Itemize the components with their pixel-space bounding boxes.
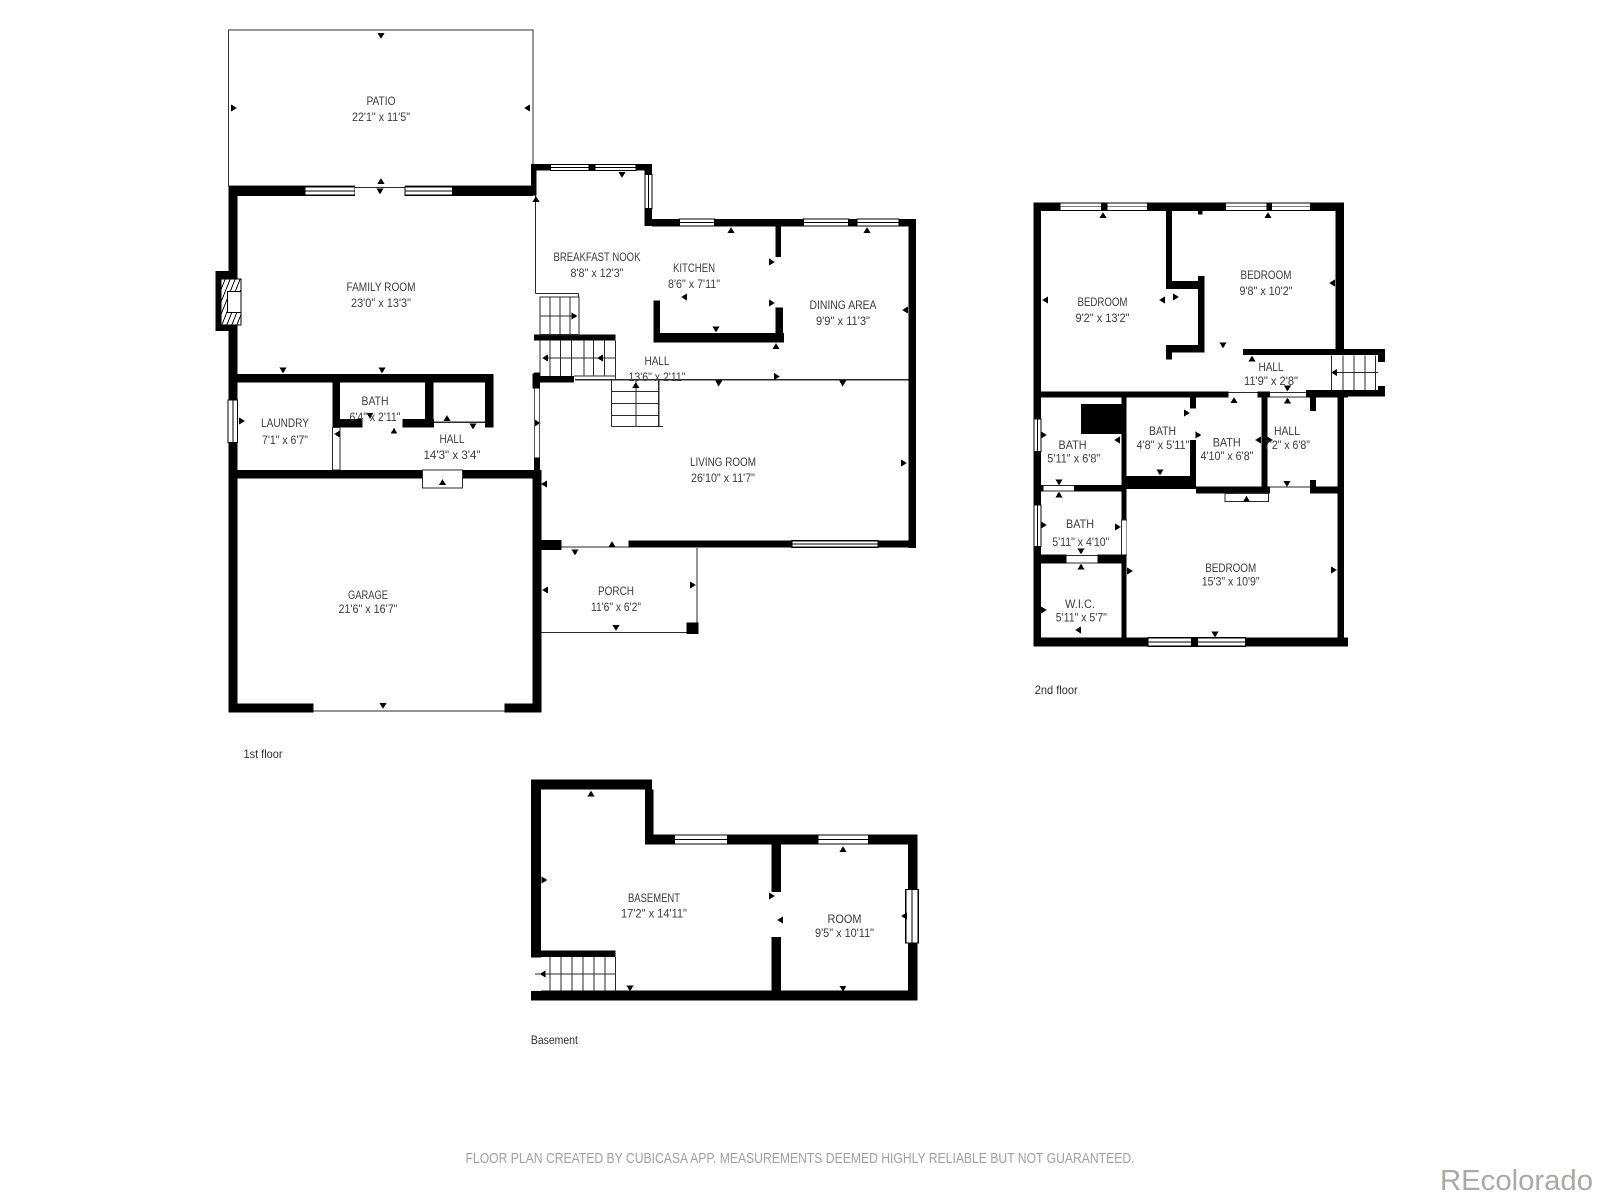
svg-text:LIVING ROOM: LIVING ROOM bbox=[690, 455, 756, 469]
svg-text:13'6" x 2'11": 13'6" x 2'11" bbox=[629, 370, 686, 384]
svg-text:BEDROOM: BEDROOM bbox=[1078, 295, 1128, 309]
svg-text:17'2" x 14'11": 17'2" x 14'11" bbox=[621, 907, 687, 921]
svg-text:BATH: BATH bbox=[1059, 438, 1087, 452]
svg-text:9'5" x 10'11": 9'5" x 10'11" bbox=[815, 926, 874, 940]
svg-text:22'1" x 11'5": 22'1" x 11'5" bbox=[352, 110, 410, 124]
svg-text:5'11" x 5'7": 5'11" x 5'7" bbox=[1056, 611, 1107, 625]
svg-text:BATH: BATH bbox=[362, 394, 389, 408]
svg-text:21'6" x 16'7": 21'6" x 16'7" bbox=[339, 602, 398, 616]
svg-text:5'11" x 4'10": 5'11" x 4'10" bbox=[1052, 535, 1109, 549]
svg-text:PORCH: PORCH bbox=[598, 584, 634, 598]
svg-text:BEDROOM: BEDROOM bbox=[1241, 268, 1292, 282]
svg-text:9'8" x 10'2": 9'8" x 10'2" bbox=[1240, 284, 1293, 298]
svg-text:BATH: BATH bbox=[1213, 436, 1241, 450]
svg-text:9'2" x 13'2": 9'2" x 13'2" bbox=[1076, 311, 1130, 325]
svg-text:PATIO: PATIO bbox=[367, 94, 396, 108]
svg-text:8'8" x 12'3": 8'8" x 12'3" bbox=[571, 266, 624, 280]
svg-text:HALL: HALL bbox=[1259, 360, 1284, 374]
svg-text:REcolorado: REcolorado bbox=[1440, 1165, 1593, 1197]
svg-text:11'9" x 2'8": 11'9" x 2'8" bbox=[1244, 374, 1298, 388]
svg-text:4'10" x 6'8": 4'10" x 6'8" bbox=[1201, 449, 1254, 463]
svg-text:8'6" x 7'11": 8'6" x 7'11" bbox=[668, 277, 720, 291]
svg-text:GARAGE: GARAGE bbox=[348, 588, 388, 602]
svg-text:26'10" x 11'7": 26'10" x 11'7" bbox=[691, 471, 755, 485]
svg-text:15'3" x 10'9": 15'3" x 10'9" bbox=[1202, 575, 1260, 589]
svg-text:9'9" x 11'3": 9'9" x 11'3" bbox=[816, 314, 870, 328]
svg-text:11'6" x 6'2": 11'6" x 6'2" bbox=[591, 600, 641, 614]
svg-text:LAUNDRY: LAUNDRY bbox=[261, 416, 309, 430]
svg-text:DINING AREA: DINING AREA bbox=[810, 298, 877, 312]
svg-text:FAMILY ROOM: FAMILY ROOM bbox=[347, 280, 416, 294]
svg-text:BATH: BATH bbox=[1149, 424, 1176, 438]
svg-text:ROOM: ROOM bbox=[828, 912, 862, 926]
svg-text:BEDROOM: BEDROOM bbox=[1205, 561, 1256, 575]
svg-text:HALL: HALL bbox=[440, 432, 465, 446]
svg-text:KITCHEN: KITCHEN bbox=[673, 261, 715, 275]
svg-text:Basement: Basement bbox=[531, 1033, 579, 1047]
svg-text:23'0" x 13'3": 23'0" x 13'3" bbox=[351, 296, 411, 310]
svg-text:HALL: HALL bbox=[1274, 424, 1300, 438]
svg-text:2nd floor: 2nd floor bbox=[1035, 683, 1078, 697]
svg-text:BATH: BATH bbox=[1066, 517, 1094, 531]
svg-text:7'2" x 6'8": 7'2" x 6'8" bbox=[1264, 438, 1310, 452]
svg-text:HALL: HALL bbox=[645, 354, 670, 368]
svg-text:4'8" x 5'11": 4'8" x 5'11" bbox=[1137, 438, 1190, 452]
svg-text:6'4" x 2'11": 6'4" x 2'11" bbox=[350, 410, 401, 424]
svg-text:FLOOR PLAN CREATED BY CUBICASA: FLOOR PLAN CREATED BY CUBICASA APP. MEAS… bbox=[466, 1151, 1135, 1167]
svg-text:BREAKFAST NOOK: BREAKFAST NOOK bbox=[554, 250, 641, 264]
svg-text:W.I.C.: W.I.C. bbox=[1065, 597, 1095, 611]
svg-text:5'11" x 6'8": 5'11" x 6'8" bbox=[1047, 452, 1100, 466]
svg-text:7'1" x 6'7": 7'1" x 6'7" bbox=[262, 433, 308, 447]
svg-text:1st floor: 1st floor bbox=[244, 747, 283, 761]
svg-text:BASEMENT: BASEMENT bbox=[628, 891, 681, 905]
svg-text:14'3" x 3'4": 14'3" x 3'4" bbox=[424, 448, 481, 462]
